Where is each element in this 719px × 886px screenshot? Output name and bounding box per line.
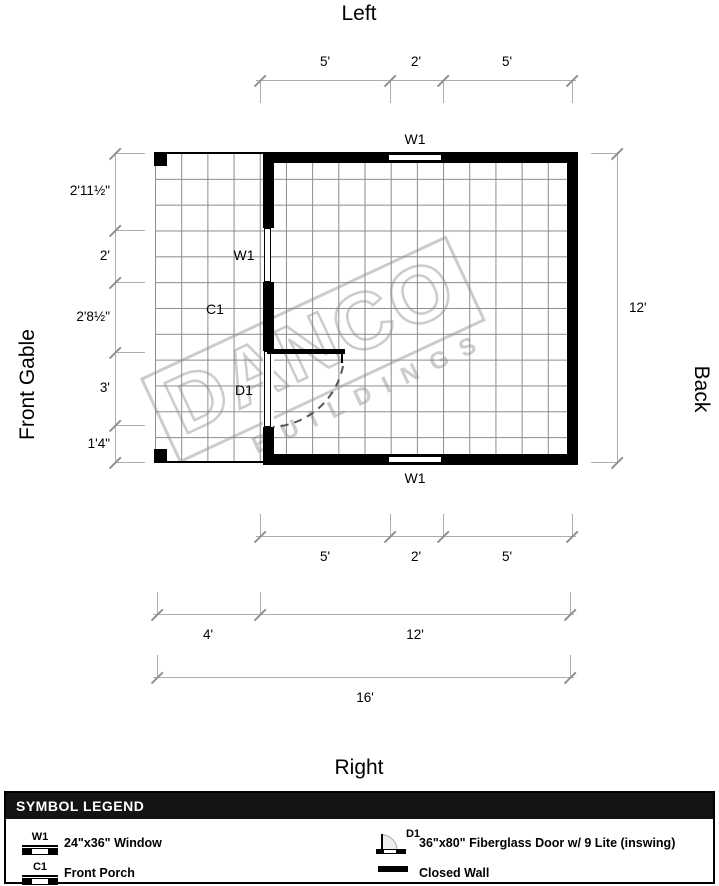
dim-label: 2'8½" (50, 309, 110, 324)
side-title-bottom: Right (299, 756, 419, 780)
door-leaf-end (341, 354, 343, 363)
porch-post-top (154, 152, 167, 166)
dim-stub (572, 514, 573, 536)
dim-label: 2' (50, 248, 110, 263)
dim-stub (570, 655, 571, 677)
window-top-w1 (388, 154, 442, 161)
porch-post-bottom (154, 449, 167, 463)
closed-wall-symbol-icon (378, 866, 408, 872)
porch-bottom-edge (155, 461, 263, 463)
legend-symbol-d1-label: D1 (406, 829, 420, 840)
legend-wall-text: Closed Wall (419, 866, 489, 880)
dim-label: 12' (395, 627, 435, 642)
dim-stub (116, 230, 145, 231)
side-title-top: Left (299, 2, 419, 26)
legend-symbol-underline (22, 845, 58, 847)
legend-d1-text: 36"x80" Fiberglass Door w/ 9 Lite (inswi… (419, 836, 675, 850)
legend-symbol-w1: W1 (18, 832, 62, 855)
label-window-top: W1 (398, 131, 432, 147)
label-window-bottom: W1 (398, 470, 432, 486)
dim-stub (591, 153, 617, 154)
dim-label: 5' (487, 54, 527, 69)
wall-left-upper (263, 152, 274, 228)
legend-symbol-underline (22, 875, 58, 877)
dim-stub (572, 81, 573, 103)
dim-label: 5' (305, 54, 345, 69)
symbol-legend: SYMBOL LEGEND W1 24"x36" Window C1 Front… (4, 791, 715, 884)
door-leaf (267, 349, 345, 354)
legend-w1-text: 24"x36" Window (64, 836, 162, 850)
legend-symbol-c1-label: C1 (18, 862, 62, 873)
window-bottom-w1 (388, 456, 442, 463)
dim-line-bottom3 (153, 677, 574, 678)
legend-body: W1 24"x36" Window C1 Front Porch D1 (6, 819, 713, 882)
dim-label: 2' (396, 549, 436, 564)
dim-stub (260, 81, 261, 103)
dim-stub (116, 352, 145, 353)
dim-line-bottom2 (153, 614, 574, 615)
dim-stub (443, 81, 444, 103)
dim-label: 5' (305, 549, 345, 564)
legend-symbol-c1: C1 (18, 862, 62, 885)
wall-left-lower (263, 427, 274, 465)
dim-line-bottom1 (256, 536, 576, 537)
dim-stub (390, 514, 391, 536)
dim-label: 4' (188, 627, 228, 642)
dim-stub (116, 282, 145, 283)
window-left-w1 (264, 228, 271, 282)
dim-line-top (256, 80, 576, 81)
dim-stub (116, 153, 145, 154)
dim-label: 16' (345, 690, 385, 705)
dim-stub (443, 514, 444, 536)
dim-label: 5' (487, 549, 527, 564)
dim-label: 2' (396, 54, 436, 69)
dim-line-left (115, 152, 116, 463)
dim-label: 1'4" (50, 436, 110, 451)
dim-stub (116, 425, 145, 426)
legend-symbol-d1: D1 (374, 829, 422, 855)
dim-stub (157, 655, 158, 677)
dim-label: 2'11½" (50, 183, 110, 198)
legend-c1-text: Front Porch (64, 866, 135, 880)
door-jamb (264, 351, 271, 427)
legend-symbol-w1-label: W1 (18, 832, 62, 843)
dim-stub (116, 462, 145, 463)
label-door: D1 (227, 382, 261, 398)
side-title-right: Back (689, 364, 713, 414)
door-symbol-icon (376, 829, 406, 855)
dim-label: 12' (620, 300, 669, 315)
legend-header: SYMBOL LEGEND (6, 793, 713, 819)
label-porch: C1 (198, 301, 232, 317)
porch-symbol-icon (22, 878, 58, 885)
dim-stub (390, 81, 391, 103)
floor-plan-canvas: Left Right Front Gable Back DANCO BUILDI… (0, 0, 719, 886)
wall-left-middle (263, 282, 274, 351)
dim-stub (570, 592, 571, 614)
dim-stub (591, 462, 617, 463)
wall-right (567, 152, 578, 465)
window-symbol-icon (22, 848, 58, 855)
side-title-left: Front Gable (16, 330, 40, 440)
dim-label: 3' (50, 380, 110, 395)
label-window-left: W1 (227, 247, 261, 263)
dim-stub (157, 592, 158, 614)
dim-line-right (617, 152, 618, 463)
dim-stub (260, 514, 261, 536)
dim-stub (260, 592, 261, 614)
porch-top-edge (155, 152, 263, 154)
